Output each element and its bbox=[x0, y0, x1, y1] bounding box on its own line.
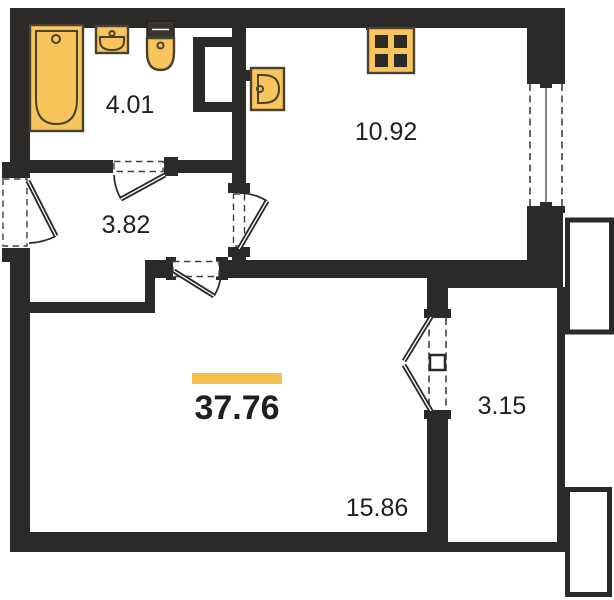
kitchen-area-label: 10.92 bbox=[355, 118, 418, 146]
wall-top bbox=[10, 8, 565, 28]
stove-burner bbox=[394, 35, 407, 48]
entry-door-jamb-bottom bbox=[2, 248, 30, 262]
french-door-jamb-top bbox=[424, 309, 451, 318]
wall-right-upper bbox=[527, 8, 565, 80]
bathtub-body bbox=[30, 25, 83, 131]
total-area-accent-bar bbox=[192, 373, 282, 384]
stove-burner bbox=[375, 54, 388, 67]
toilet bbox=[147, 21, 174, 70]
balcony-wall-right bbox=[557, 287, 565, 550]
kitchen-door-jamb-top bbox=[228, 183, 250, 193]
window-mullion-bottom bbox=[540, 202, 552, 210]
french-door-jamb-bottom bbox=[424, 410, 451, 419]
stove bbox=[366, 24, 415, 73]
kitchen-bottom-wall-right bbox=[220, 260, 527, 278]
living-balcony-wall-lower bbox=[427, 419, 448, 532]
living-room-area-label: 15.86 bbox=[346, 494, 409, 522]
hallway-wall-lower bbox=[10, 302, 155, 313]
living-balcony-wall-upper bbox=[427, 278, 448, 311]
entry-door-opening bbox=[3, 179, 27, 246]
balcony-wall-top bbox=[448, 278, 557, 288]
total-area-label: 37.76 bbox=[194, 389, 279, 427]
bathroom-area-label: 4.01 bbox=[106, 91, 155, 119]
floor-plan-page: 4.01 3.82 10.92 37.76 15.86 3.15 bbox=[0, 0, 614, 600]
stove-burner bbox=[394, 54, 407, 67]
window-mullion-top bbox=[540, 80, 552, 88]
hallway-wall-step bbox=[145, 260, 155, 313]
floor-plan: 4.01 3.82 10.92 37.76 15.86 3.15 bbox=[0, 0, 614, 600]
neighbor-balcony-bottom bbox=[568, 490, 610, 595]
stove-body bbox=[368, 28, 414, 73]
neighbor-balcony-top bbox=[568, 220, 612, 332]
stove-burner bbox=[375, 35, 388, 48]
bathroom-wall-left-segment bbox=[10, 160, 113, 173]
hallway-area-label: 3.82 bbox=[102, 211, 151, 239]
balcony-area-label: 3.15 bbox=[478, 392, 527, 420]
bathroom-door-jamb bbox=[164, 157, 178, 176]
plan-background bbox=[0, 0, 614, 600]
bathroom-sink bbox=[96, 26, 128, 53]
shaft-wall-left bbox=[193, 37, 205, 112]
wall-bathroom-kitchen bbox=[232, 28, 246, 185]
french-door-handle bbox=[430, 355, 445, 370]
wall-right-middle bbox=[527, 213, 563, 287]
wall-left-upper bbox=[10, 8, 30, 162]
shaft-wall-bottom bbox=[193, 102, 232, 112]
bathroom-door-opening bbox=[114, 162, 163, 172]
bathtub bbox=[30, 25, 83, 131]
wall-bottom bbox=[10, 532, 448, 552]
balcony-wall-bottom bbox=[448, 542, 565, 552]
kitchen-wall-sink bbox=[244, 68, 284, 110]
